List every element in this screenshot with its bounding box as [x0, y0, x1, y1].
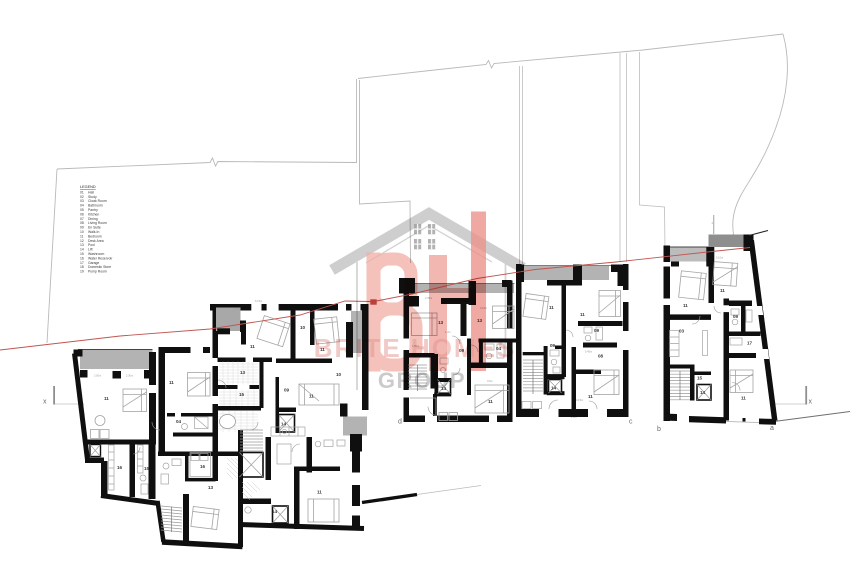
svg-text:11: 11 — [309, 394, 314, 399]
svg-text:04: 04 — [80, 204, 84, 208]
svg-text:11: 11 — [169, 380, 174, 385]
svg-text:2.55m: 2.55m — [233, 307, 240, 311]
svg-text:15: 15 — [239, 392, 245, 397]
svg-text:Bedroom: Bedroom — [88, 234, 102, 238]
svg-text:Kitchen: Kitchen — [88, 212, 99, 216]
svg-text:18: 18 — [80, 265, 84, 269]
svg-text:2.50m: 2.50m — [94, 374, 101, 378]
svg-text:LEGEND: LEGEND — [80, 185, 96, 189]
svg-text:01: 01 — [80, 190, 84, 194]
svg-text:11: 11 — [488, 399, 493, 404]
svg-text:09: 09 — [733, 314, 739, 319]
svg-text:Pump Room: Pump Room — [88, 270, 107, 274]
svg-text:17: 17 — [747, 341, 753, 346]
svg-text:10: 10 — [300, 325, 306, 330]
svg-text:11: 11 — [80, 234, 84, 238]
svg-text:11: 11 — [549, 305, 554, 310]
svg-text:3.6m: 3.6m — [487, 379, 493, 383]
svg-text:14: 14 — [281, 422, 287, 427]
svg-text:10: 10 — [336, 372, 342, 377]
svg-text:03: 03 — [80, 199, 84, 203]
svg-text:2.30m: 2.30m — [126, 374, 133, 378]
svg-text:14: 14 — [272, 509, 278, 514]
svg-text:d: d — [398, 419, 402, 426]
svg-text:08: 08 — [80, 221, 84, 225]
svg-text:09: 09 — [80, 226, 84, 230]
svg-text:6.15m: 6.15m — [255, 299, 262, 303]
svg-text:5.10m: 5.10m — [716, 256, 723, 260]
svg-text:Study: Study — [88, 195, 97, 199]
svg-text:14: 14 — [80, 248, 84, 252]
svg-text:BRITE HOMES: BRITE HOMES — [314, 333, 517, 363]
svg-text:Domestic Store: Domestic Store — [88, 265, 111, 269]
svg-text:Garage: Garage — [88, 261, 99, 265]
svg-text:Hall: Hall — [88, 190, 94, 194]
svg-text:15: 15 — [80, 252, 84, 256]
svg-text:03: 03 — [679, 329, 685, 334]
svg-text:13: 13 — [208, 485, 214, 490]
svg-text:Pantry: Pantry — [88, 208, 98, 212]
svg-text:13: 13 — [240, 370, 246, 375]
svg-text:11: 11 — [580, 312, 585, 317]
svg-text:Dining: Dining — [88, 217, 98, 221]
svg-text:14: 14 — [551, 386, 557, 391]
svg-text:08: 08 — [598, 354, 604, 359]
svg-text:4.15m: 4.15m — [576, 398, 583, 402]
svg-text:11: 11 — [588, 394, 593, 399]
svg-text:06: 06 — [80, 212, 84, 216]
svg-text:GROUP: GROUP — [378, 368, 466, 393]
svg-text:13: 13 — [80, 243, 84, 247]
svg-text:12: 12 — [80, 239, 84, 243]
svg-text:En Suite: En Suite — [88, 226, 101, 230]
svg-text:04: 04 — [176, 419, 182, 424]
svg-text:Cloak Room: Cloak Room — [88, 199, 107, 203]
svg-text:16: 16 — [117, 465, 123, 470]
svg-text:16: 16 — [200, 464, 206, 469]
svg-text:11: 11 — [104, 396, 109, 401]
svg-text:09: 09 — [550, 343, 556, 348]
svg-text:19: 19 — [80, 270, 84, 274]
svg-text:Water Reservoir: Water Reservoir — [88, 256, 113, 260]
svg-text:16: 16 — [80, 256, 84, 260]
svg-text:x: x — [43, 399, 47, 406]
svg-text:Living Room: Living Room — [88, 221, 107, 225]
svg-text:Pool: Pool — [88, 243, 95, 247]
svg-text:15: 15 — [697, 376, 703, 381]
svg-text:Washroom: Washroom — [88, 252, 104, 256]
svg-text:Desk Area: Desk Area — [88, 239, 104, 243]
svg-text:c: c — [629, 419, 633, 426]
svg-text:Bathroom: Bathroom — [88, 204, 103, 208]
svg-text:09: 09 — [594, 328, 600, 333]
svg-text:07: 07 — [80, 217, 84, 221]
svg-text:Walk-In: Walk-In — [88, 230, 99, 234]
svg-text:10: 10 — [80, 230, 84, 234]
svg-text:11: 11 — [741, 396, 746, 401]
svg-text:11: 11 — [720, 288, 725, 293]
svg-text:14: 14 — [700, 390, 706, 395]
svg-text:11: 11 — [250, 344, 255, 349]
svg-text:5.45m: 5.45m — [585, 350, 592, 354]
svg-text:02: 02 — [80, 195, 84, 199]
svg-text:Lift: Lift — [88, 248, 93, 252]
svg-text:11: 11 — [683, 303, 688, 308]
svg-text:a: a — [770, 425, 774, 432]
svg-text:17: 17 — [80, 261, 84, 265]
svg-text:x: x — [809, 399, 813, 406]
svg-text:05: 05 — [80, 208, 84, 212]
svg-text:15: 15 — [144, 466, 150, 471]
svg-text:b: b — [657, 426, 661, 433]
svg-text:11: 11 — [317, 490, 322, 495]
svg-text:09: 09 — [284, 388, 290, 393]
